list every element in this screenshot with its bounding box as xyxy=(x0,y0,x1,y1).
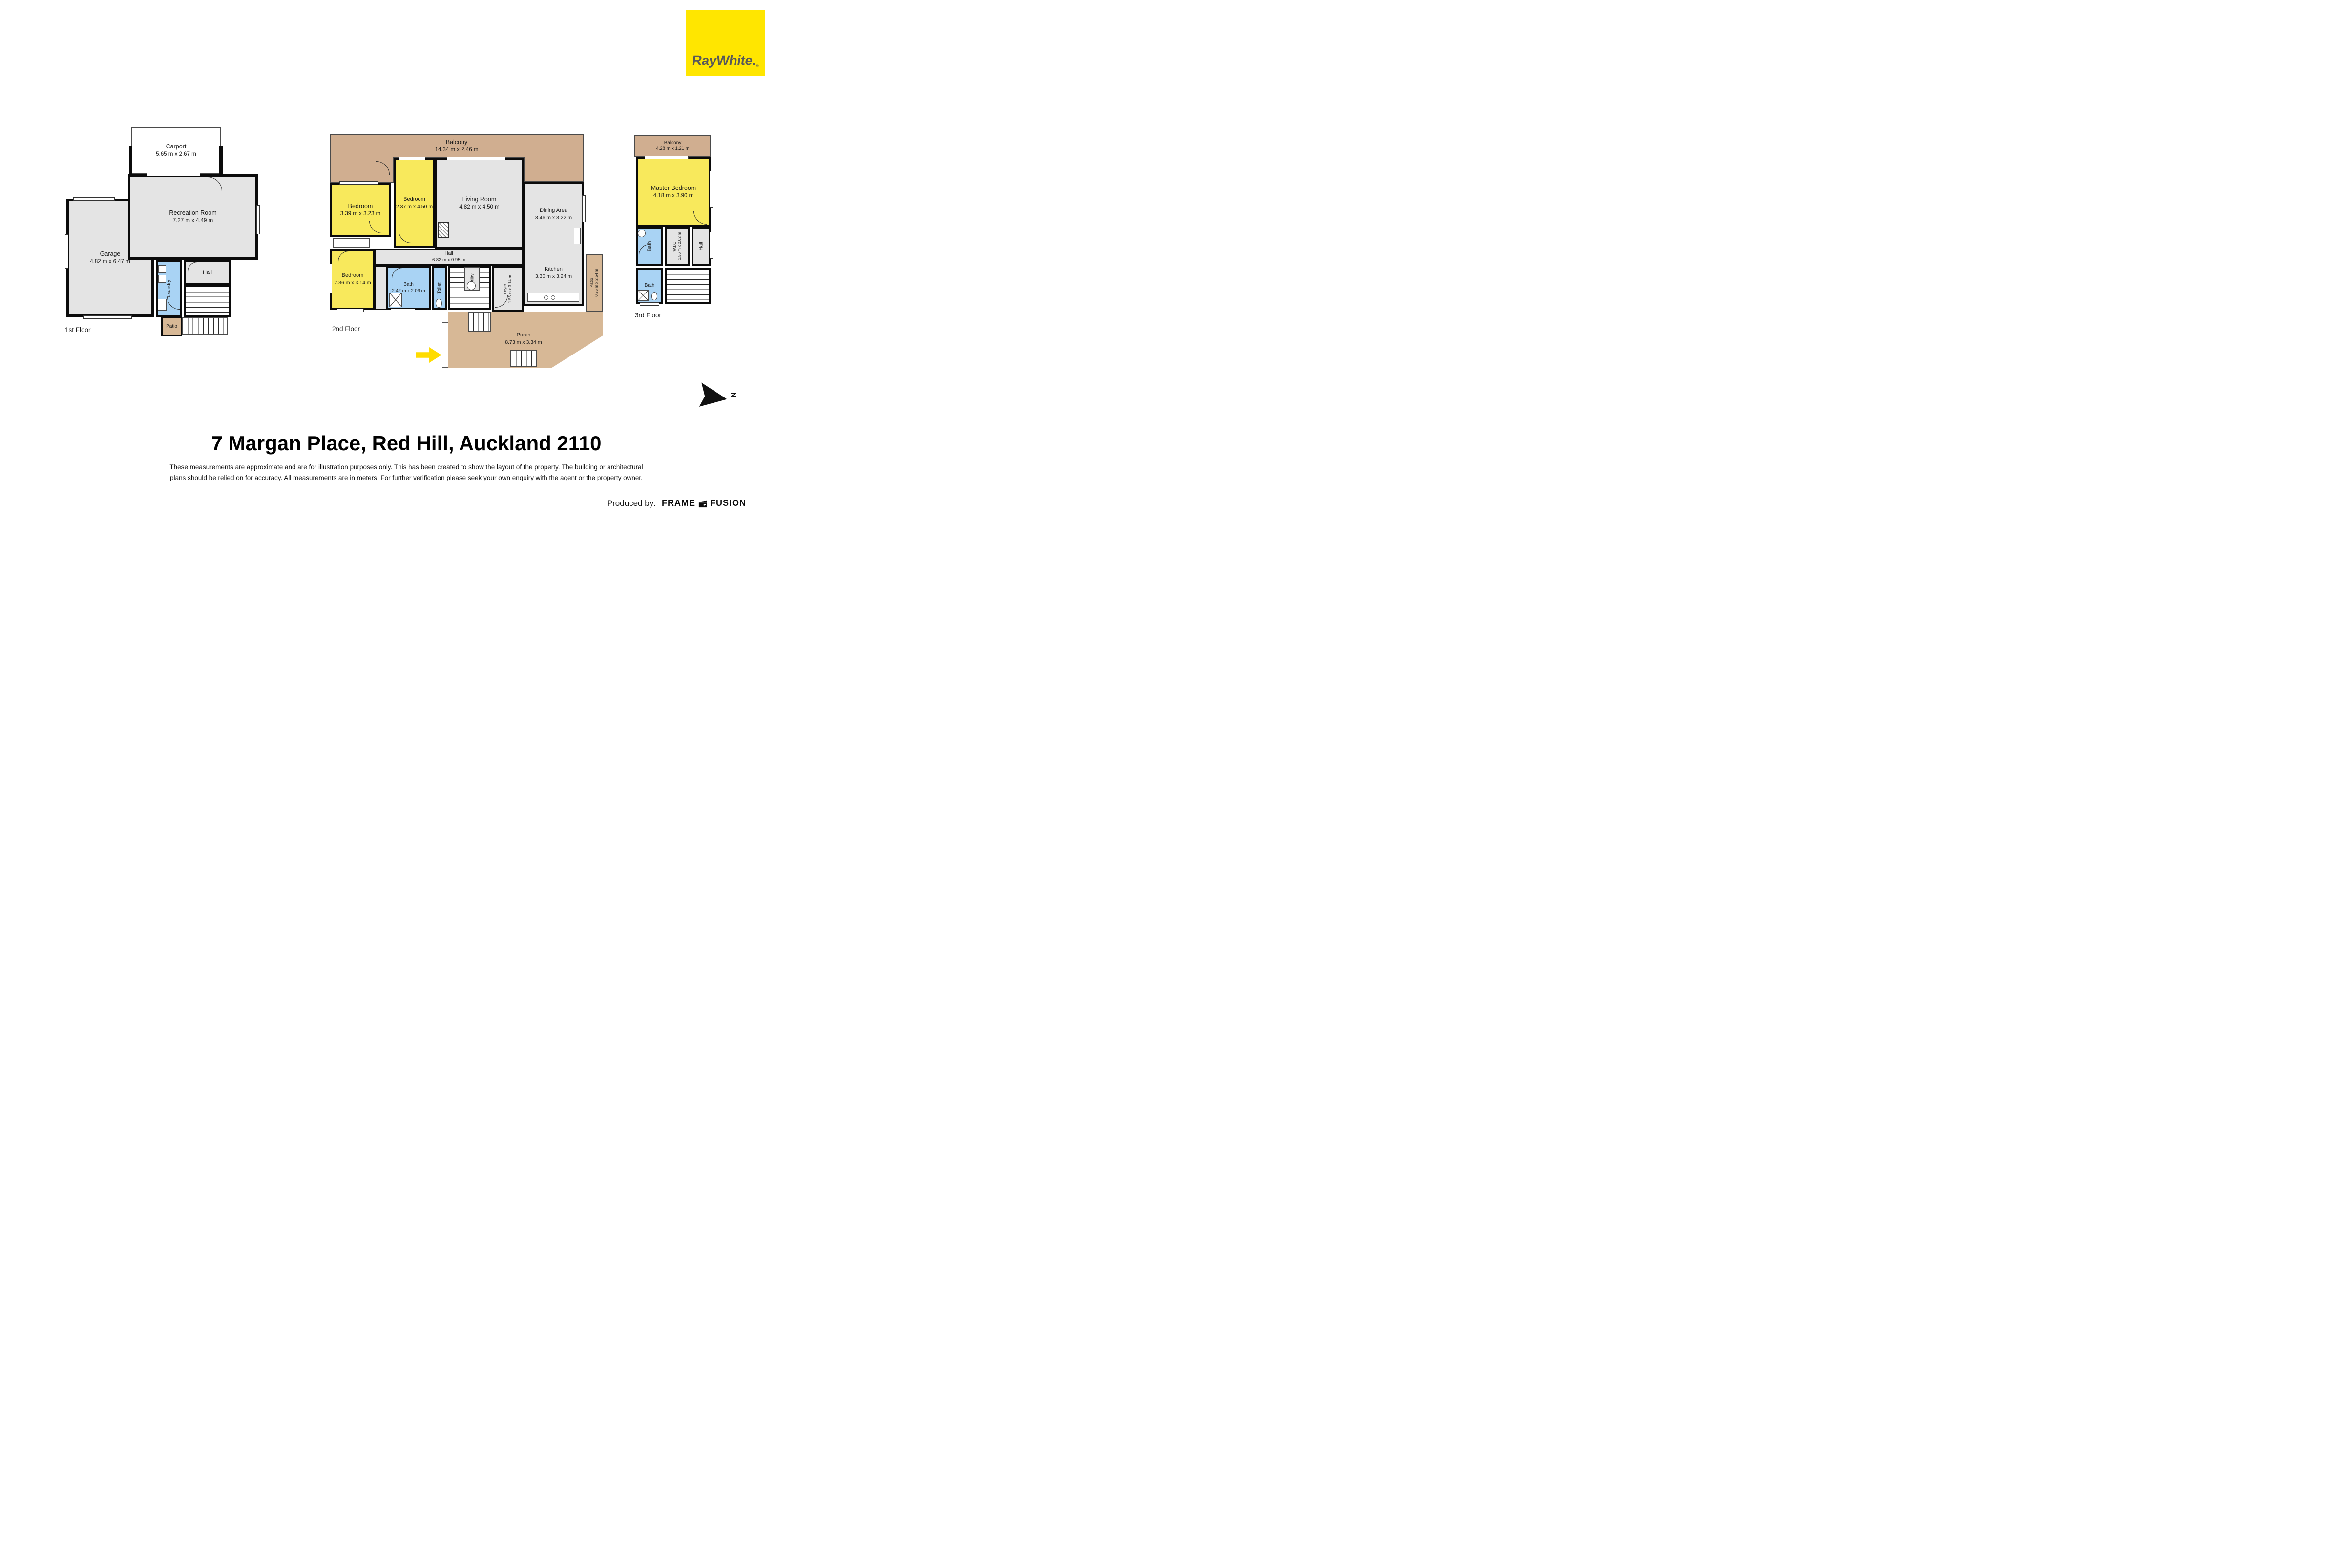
entry-arrow-icon xyxy=(416,347,441,363)
window xyxy=(65,234,68,269)
window xyxy=(710,171,713,208)
room-dims: 5.65 m x 2.67 m xyxy=(156,151,196,159)
room-dims: 3.46 m x 3.22 m xyxy=(525,214,582,221)
room-name: Patio xyxy=(166,323,177,330)
toilet-icon xyxy=(436,299,442,308)
window xyxy=(710,232,713,259)
room-name: W.I.C. xyxy=(672,240,677,251)
room-name: Laundry xyxy=(166,279,172,297)
room-hall-floor2: Hall 6.82 m x 0.95 m xyxy=(374,249,524,266)
window xyxy=(329,264,332,293)
stairs-patio-floor1 xyxy=(182,317,228,335)
room-dims: 4.18 m x 3.90 m xyxy=(653,192,693,200)
room-dims: 14.34 m x 2.46 m xyxy=(435,146,479,154)
room-name: Porch xyxy=(492,332,555,339)
raywhite-logo-text: RayWhite. xyxy=(690,53,757,76)
room-name: Bedroom xyxy=(348,202,373,210)
floor2-label: 2nd Floor xyxy=(332,325,360,333)
porch-label: Porch 8.73 m x 3.34 m xyxy=(492,332,555,346)
room-name: Bedroom xyxy=(403,196,425,203)
room-dims: 3.39 m x 3.23 m xyxy=(340,210,380,218)
room-name: Bath xyxy=(403,281,414,288)
closet xyxy=(333,238,370,248)
raywhite-logo: RayWhite. ® xyxy=(686,10,765,76)
window xyxy=(73,197,115,201)
room-name: Balcony xyxy=(446,138,467,146)
shower-icon xyxy=(638,290,649,301)
room-hall-floor3: Hall xyxy=(692,227,711,266)
floorplan-sheet: RayWhite. ® Carport 5.65 m x 2.67 m Gara… xyxy=(0,0,783,523)
room-dining-kitchen: Dining Area 3.46 m x 3.22 m Kitchen 3.30… xyxy=(524,182,584,306)
room-dims: 1.55 m x 3.14 m xyxy=(508,275,513,303)
floor1-label: 1st Floor xyxy=(65,326,91,334)
room-patio-floor1: Patio xyxy=(161,317,182,336)
room-name: Garage xyxy=(100,250,121,258)
room-dims: 7.27 m x 4.49 m xyxy=(173,217,213,225)
stairs-floor3 xyxy=(665,268,711,304)
kitchen-sink-icon xyxy=(574,228,581,244)
dining-label: Dining Area 3.46 m x 3.22 m xyxy=(525,207,582,221)
north-label: N xyxy=(729,392,737,397)
produced-by-label: Produced by: xyxy=(607,499,656,508)
porch-walkway xyxy=(442,322,448,368)
disclaimer-line2: plans should be relied on for accuracy. … xyxy=(29,473,783,483)
room-patio-floor2: Patio 0.95 m x 2.54 m xyxy=(586,254,603,312)
disclaimer-line1: These measurements are approximate and a… xyxy=(29,462,783,473)
room-name: Carport xyxy=(166,143,187,151)
room-recreation: Recreation Room 7.27 m x 4.49 m xyxy=(128,174,258,260)
room-name: Kitchen xyxy=(525,266,582,273)
frame-fusion-logo: FRAME FUSION xyxy=(662,498,746,508)
laundry-sink-icon xyxy=(158,299,167,311)
room-carport: Carport 5.65 m x 2.67 m xyxy=(131,127,221,174)
room-wic: W.I.C. 1.56 m x 2.02 m xyxy=(665,227,690,266)
room-name: Foyer xyxy=(503,284,508,294)
floor3-label: 3rd Floor xyxy=(635,312,661,319)
stove-burner-icon xyxy=(544,295,548,300)
room-name: Balcony xyxy=(664,140,682,146)
room-dims: 0.95 m x 2.54 m xyxy=(594,269,600,296)
room-name: Hall xyxy=(698,242,705,250)
window xyxy=(645,156,689,159)
producer-word2: FUSION xyxy=(710,498,746,508)
sink-icon xyxy=(638,230,646,237)
stairs-porch-upper xyxy=(468,312,491,332)
room-dims: 8.73 m x 3.34 m xyxy=(492,339,555,346)
stairs-porch-lower xyxy=(510,350,537,367)
room-dims: 6.82 m x 0.95 m xyxy=(432,257,465,264)
room-dims: 4.82 m x 6.47 m xyxy=(90,258,130,266)
stairs-floor1 xyxy=(184,285,231,317)
window xyxy=(256,205,260,234)
clapperboard-icon xyxy=(698,499,708,508)
registered-mark-icon: ® xyxy=(756,63,759,76)
room-name: Hall xyxy=(203,269,212,276)
wall-segment xyxy=(129,146,132,174)
room-bedroom-c: Bedroom 2.36 m x 3.14 m xyxy=(330,249,375,310)
page-title: 7 Margan Place, Red Hill, Auckland 2110 xyxy=(29,432,783,455)
produced-by: Produced by: FRAME FUSION xyxy=(607,498,746,508)
room-name: Master Bedroom xyxy=(651,184,696,192)
toilet-icon xyxy=(651,292,657,300)
stove-burner-icon xyxy=(551,295,555,300)
room-dims: 2.36 m x 3.14 m xyxy=(334,279,371,286)
north-arrow-icon xyxy=(697,382,730,411)
room-name: Bath xyxy=(645,282,655,289)
window xyxy=(337,309,364,312)
dryer-icon xyxy=(158,275,166,283)
room-dims: 3.30 m x 3.24 m xyxy=(525,273,582,280)
room-dims: 4.28 m x 1.21 m xyxy=(656,146,689,152)
water-heater-icon xyxy=(467,281,476,290)
window xyxy=(83,315,132,319)
washer-icon xyxy=(158,265,166,273)
balcony-extension-right xyxy=(524,157,584,182)
kitchen-label: Kitchen 3.30 m x 3.24 m xyxy=(525,266,582,280)
wall-segment xyxy=(219,146,223,174)
room-name: Patio xyxy=(589,278,594,287)
room-name: Dining Area xyxy=(525,207,582,214)
window xyxy=(399,157,425,160)
window xyxy=(147,173,200,176)
room-name: Living Room xyxy=(462,195,496,204)
hall-stub xyxy=(374,266,387,310)
shower-icon xyxy=(389,293,402,307)
room-balcony-floor3: Balcony 4.28 m x 1.21 m xyxy=(634,135,711,157)
disclaimer: These measurements are approximate and a… xyxy=(29,462,783,483)
window xyxy=(640,302,659,306)
window xyxy=(447,157,505,160)
window xyxy=(391,309,415,312)
room-dims: 1.56 m x 2.02 m xyxy=(677,232,683,260)
room-name: Hall xyxy=(444,251,453,257)
window xyxy=(339,181,378,185)
window xyxy=(582,195,586,222)
room-balcony-floor2: Balcony 14.34 m x 2.46 m xyxy=(330,134,584,158)
room-dims: 4.82 m x 4.50 m xyxy=(459,204,499,211)
producer-word1: FRAME xyxy=(662,498,695,508)
room-name: Toilet xyxy=(436,282,443,293)
room-dims: 2.37 m x 4.50 m xyxy=(396,203,433,210)
room-name: Recreation Room xyxy=(169,209,216,217)
room-name: Bedroom xyxy=(342,272,364,279)
fireplace-icon xyxy=(438,222,449,238)
